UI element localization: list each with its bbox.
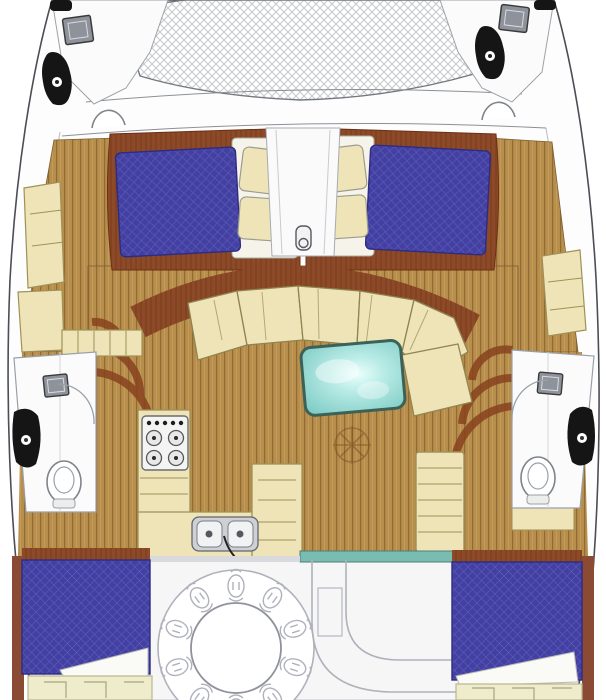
port-bow-hatch-icon — [62, 15, 93, 45]
starboard-forward-bench — [542, 250, 586, 336]
galley-stove-icon — [142, 416, 188, 470]
hatch-icon — [537, 372, 563, 395]
port-aft-cabin — [12, 548, 152, 700]
center-walkway — [266, 128, 340, 256]
steps-port — [62, 330, 142, 356]
catamaran-floorplan — [0, 0, 606, 700]
mast-step-icon — [296, 226, 311, 250]
pillow-panel — [28, 676, 152, 700]
bow-tip-cleat — [50, 0, 72, 11]
port-head — [12, 352, 96, 512]
starboard-head — [512, 350, 595, 508]
washbasin-icon — [12, 409, 40, 468]
starboard-aft-cabin — [452, 550, 594, 700]
pillow-panel — [456, 684, 582, 700]
washbasin-icon — [567, 407, 595, 466]
floorplan-svg — [0, 0, 606, 700]
port-forward-berth — [115, 147, 240, 257]
bow-tip-cleat — [534, 0, 556, 10]
starboard-bow-hatch-icon — [499, 4, 530, 32]
sliding-door — [300, 551, 464, 562]
forward-cabins — [107, 128, 498, 270]
hatch-icon — [43, 374, 69, 397]
salon-table — [300, 340, 406, 416]
starboard-forward-berth — [365, 145, 490, 255]
